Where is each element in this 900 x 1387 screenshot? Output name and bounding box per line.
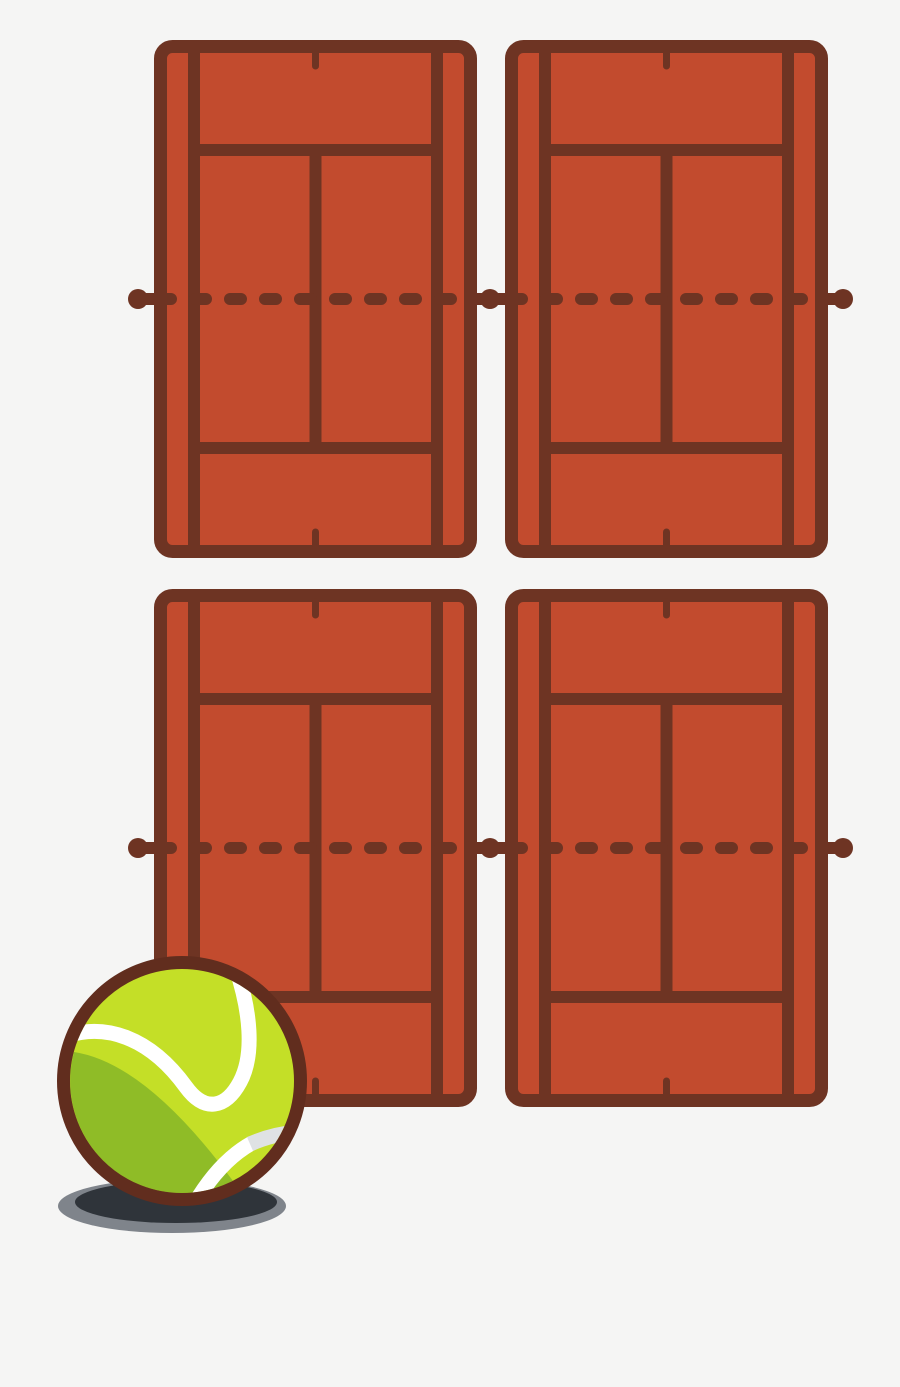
illustration-canvas — [0, 0, 900, 1387]
net-post-dot — [128, 838, 148, 858]
net-post-dot — [480, 838, 500, 858]
net-post-dot — [833, 289, 853, 309]
net-post-dot — [128, 289, 148, 309]
tennis-scene-svg — [0, 0, 900, 1387]
net-post-dot — [480, 289, 500, 309]
net-post-dot — [833, 838, 853, 858]
